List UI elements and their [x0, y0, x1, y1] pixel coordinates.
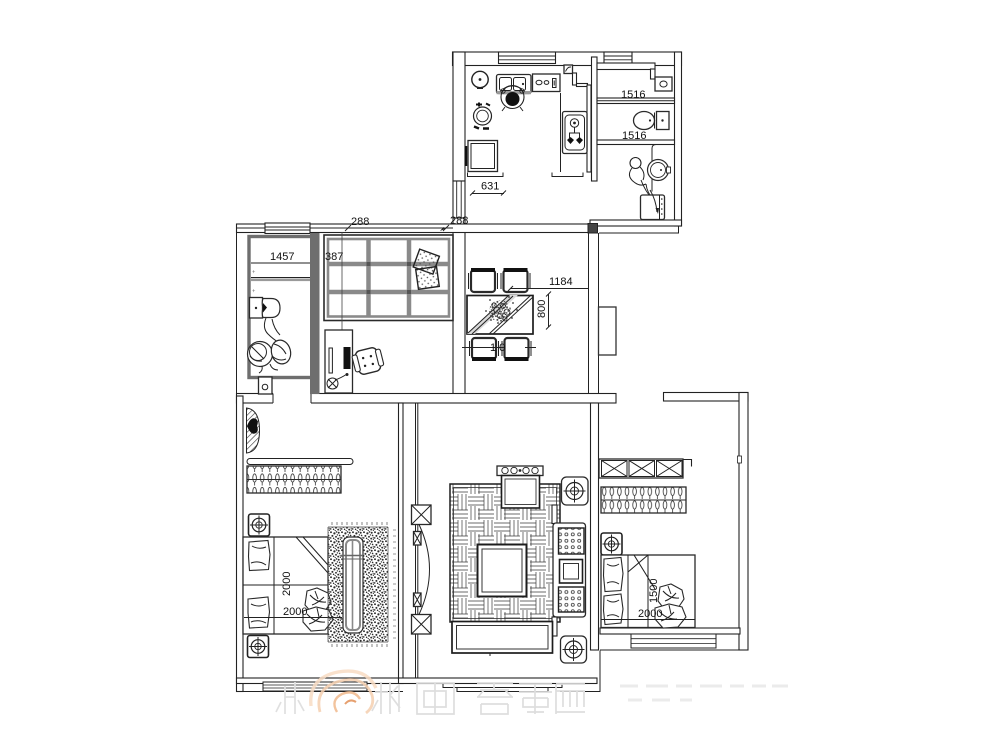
svg-text:631: 631 — [481, 181, 499, 193]
svg-text:1184: 1184 — [549, 276, 573, 288]
svg-text:387: 387 — [325, 251, 343, 263]
svg-text:1516: 1516 — [622, 130, 646, 142]
svg-text:288: 288 — [351, 216, 369, 228]
svg-text:288: 288 — [450, 215, 468, 227]
svg-text:2000: 2000 — [638, 608, 662, 620]
svg-text:1 0: 1 0 — [490, 342, 505, 354]
svg-text:1500: 1500 — [648, 579, 660, 603]
svg-text:2000: 2000 — [283, 606, 307, 618]
svg-text:2000: 2000 — [281, 572, 293, 596]
svg-text:800: 800 — [536, 300, 548, 318]
svg-text:1457: 1457 — [270, 251, 294, 263]
svg-text:1516: 1516 — [621, 89, 645, 101]
